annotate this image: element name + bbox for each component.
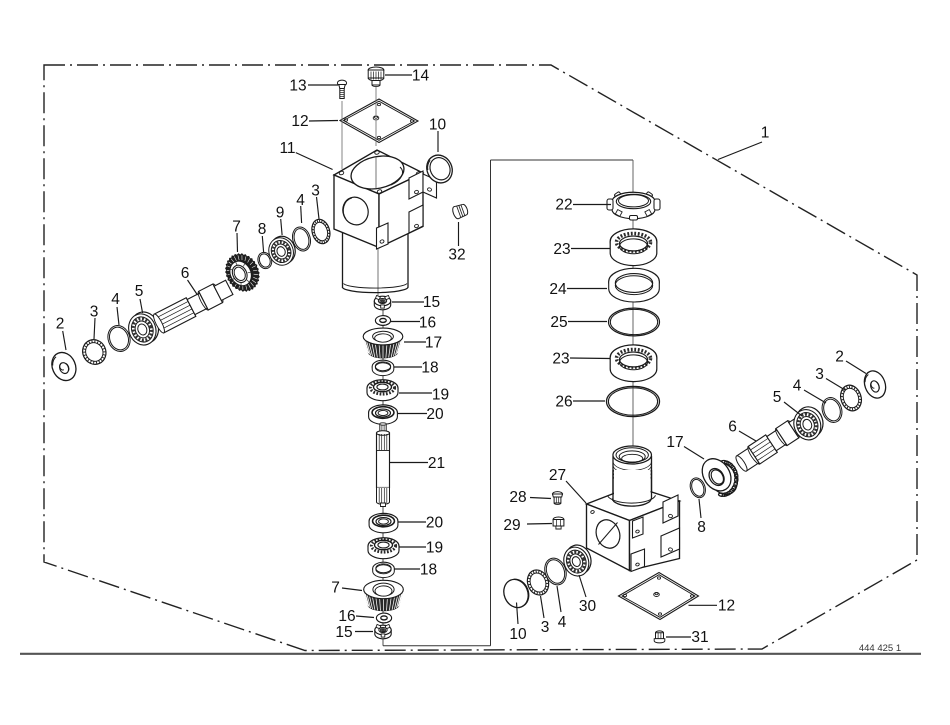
svg-text:32: 32 <box>448 247 465 264</box>
svg-text:2: 2 <box>56 316 65 333</box>
svg-text:23: 23 <box>553 241 570 258</box>
svg-text:15: 15 <box>423 294 440 311</box>
svg-text:28: 28 <box>509 489 526 506</box>
svg-text:18: 18 <box>421 360 438 377</box>
svg-text:12: 12 <box>718 598 735 615</box>
svg-text:22: 22 <box>555 197 572 214</box>
svg-text:8: 8 <box>697 519 706 536</box>
svg-text:9: 9 <box>276 205 285 222</box>
svg-text:10: 10 <box>509 626 527 643</box>
svg-text:3: 3 <box>815 366 824 383</box>
svg-text:23: 23 <box>552 351 569 368</box>
svg-text:24: 24 <box>549 281 567 298</box>
svg-text:19: 19 <box>432 387 449 404</box>
svg-text:4: 4 <box>793 378 802 395</box>
svg-text:3: 3 <box>90 304 99 321</box>
svg-text:444 425 1: 444 425 1 <box>859 643 901 654</box>
svg-text:21: 21 <box>428 455 445 472</box>
svg-text:13: 13 <box>289 78 306 95</box>
svg-text:31: 31 <box>691 629 708 646</box>
svg-text:18: 18 <box>420 562 437 579</box>
svg-text:7: 7 <box>331 580 340 597</box>
svg-text:5: 5 <box>773 389 782 406</box>
svg-text:4: 4 <box>111 291 120 308</box>
svg-text:27: 27 <box>549 467 566 484</box>
svg-text:6: 6 <box>181 265 190 282</box>
svg-text:29: 29 <box>503 517 520 534</box>
svg-text:6: 6 <box>728 419 737 436</box>
svg-text:8: 8 <box>258 221 267 238</box>
svg-text:15: 15 <box>335 624 352 641</box>
svg-text:17: 17 <box>425 335 442 352</box>
svg-text:19: 19 <box>426 540 443 557</box>
svg-text:5: 5 <box>135 283 144 300</box>
svg-text:12: 12 <box>291 113 308 130</box>
svg-text:17: 17 <box>666 434 683 451</box>
svg-text:4: 4 <box>558 614 567 631</box>
svg-text:3: 3 <box>311 183 320 200</box>
svg-text:11: 11 <box>279 140 295 157</box>
svg-text:3: 3 <box>541 619 550 636</box>
svg-text:14: 14 <box>412 68 430 85</box>
svg-text:2: 2 <box>835 349 844 366</box>
svg-text:16: 16 <box>419 315 436 332</box>
svg-text:16: 16 <box>338 608 355 625</box>
svg-text:10: 10 <box>429 117 447 134</box>
svg-text:1: 1 <box>761 125 770 142</box>
svg-text:20: 20 <box>426 515 444 532</box>
svg-text:20: 20 <box>426 406 444 423</box>
svg-text:26: 26 <box>555 394 572 411</box>
svg-text:7: 7 <box>232 219 241 236</box>
svg-text:30: 30 <box>579 598 597 615</box>
svg-text:25: 25 <box>550 314 567 331</box>
